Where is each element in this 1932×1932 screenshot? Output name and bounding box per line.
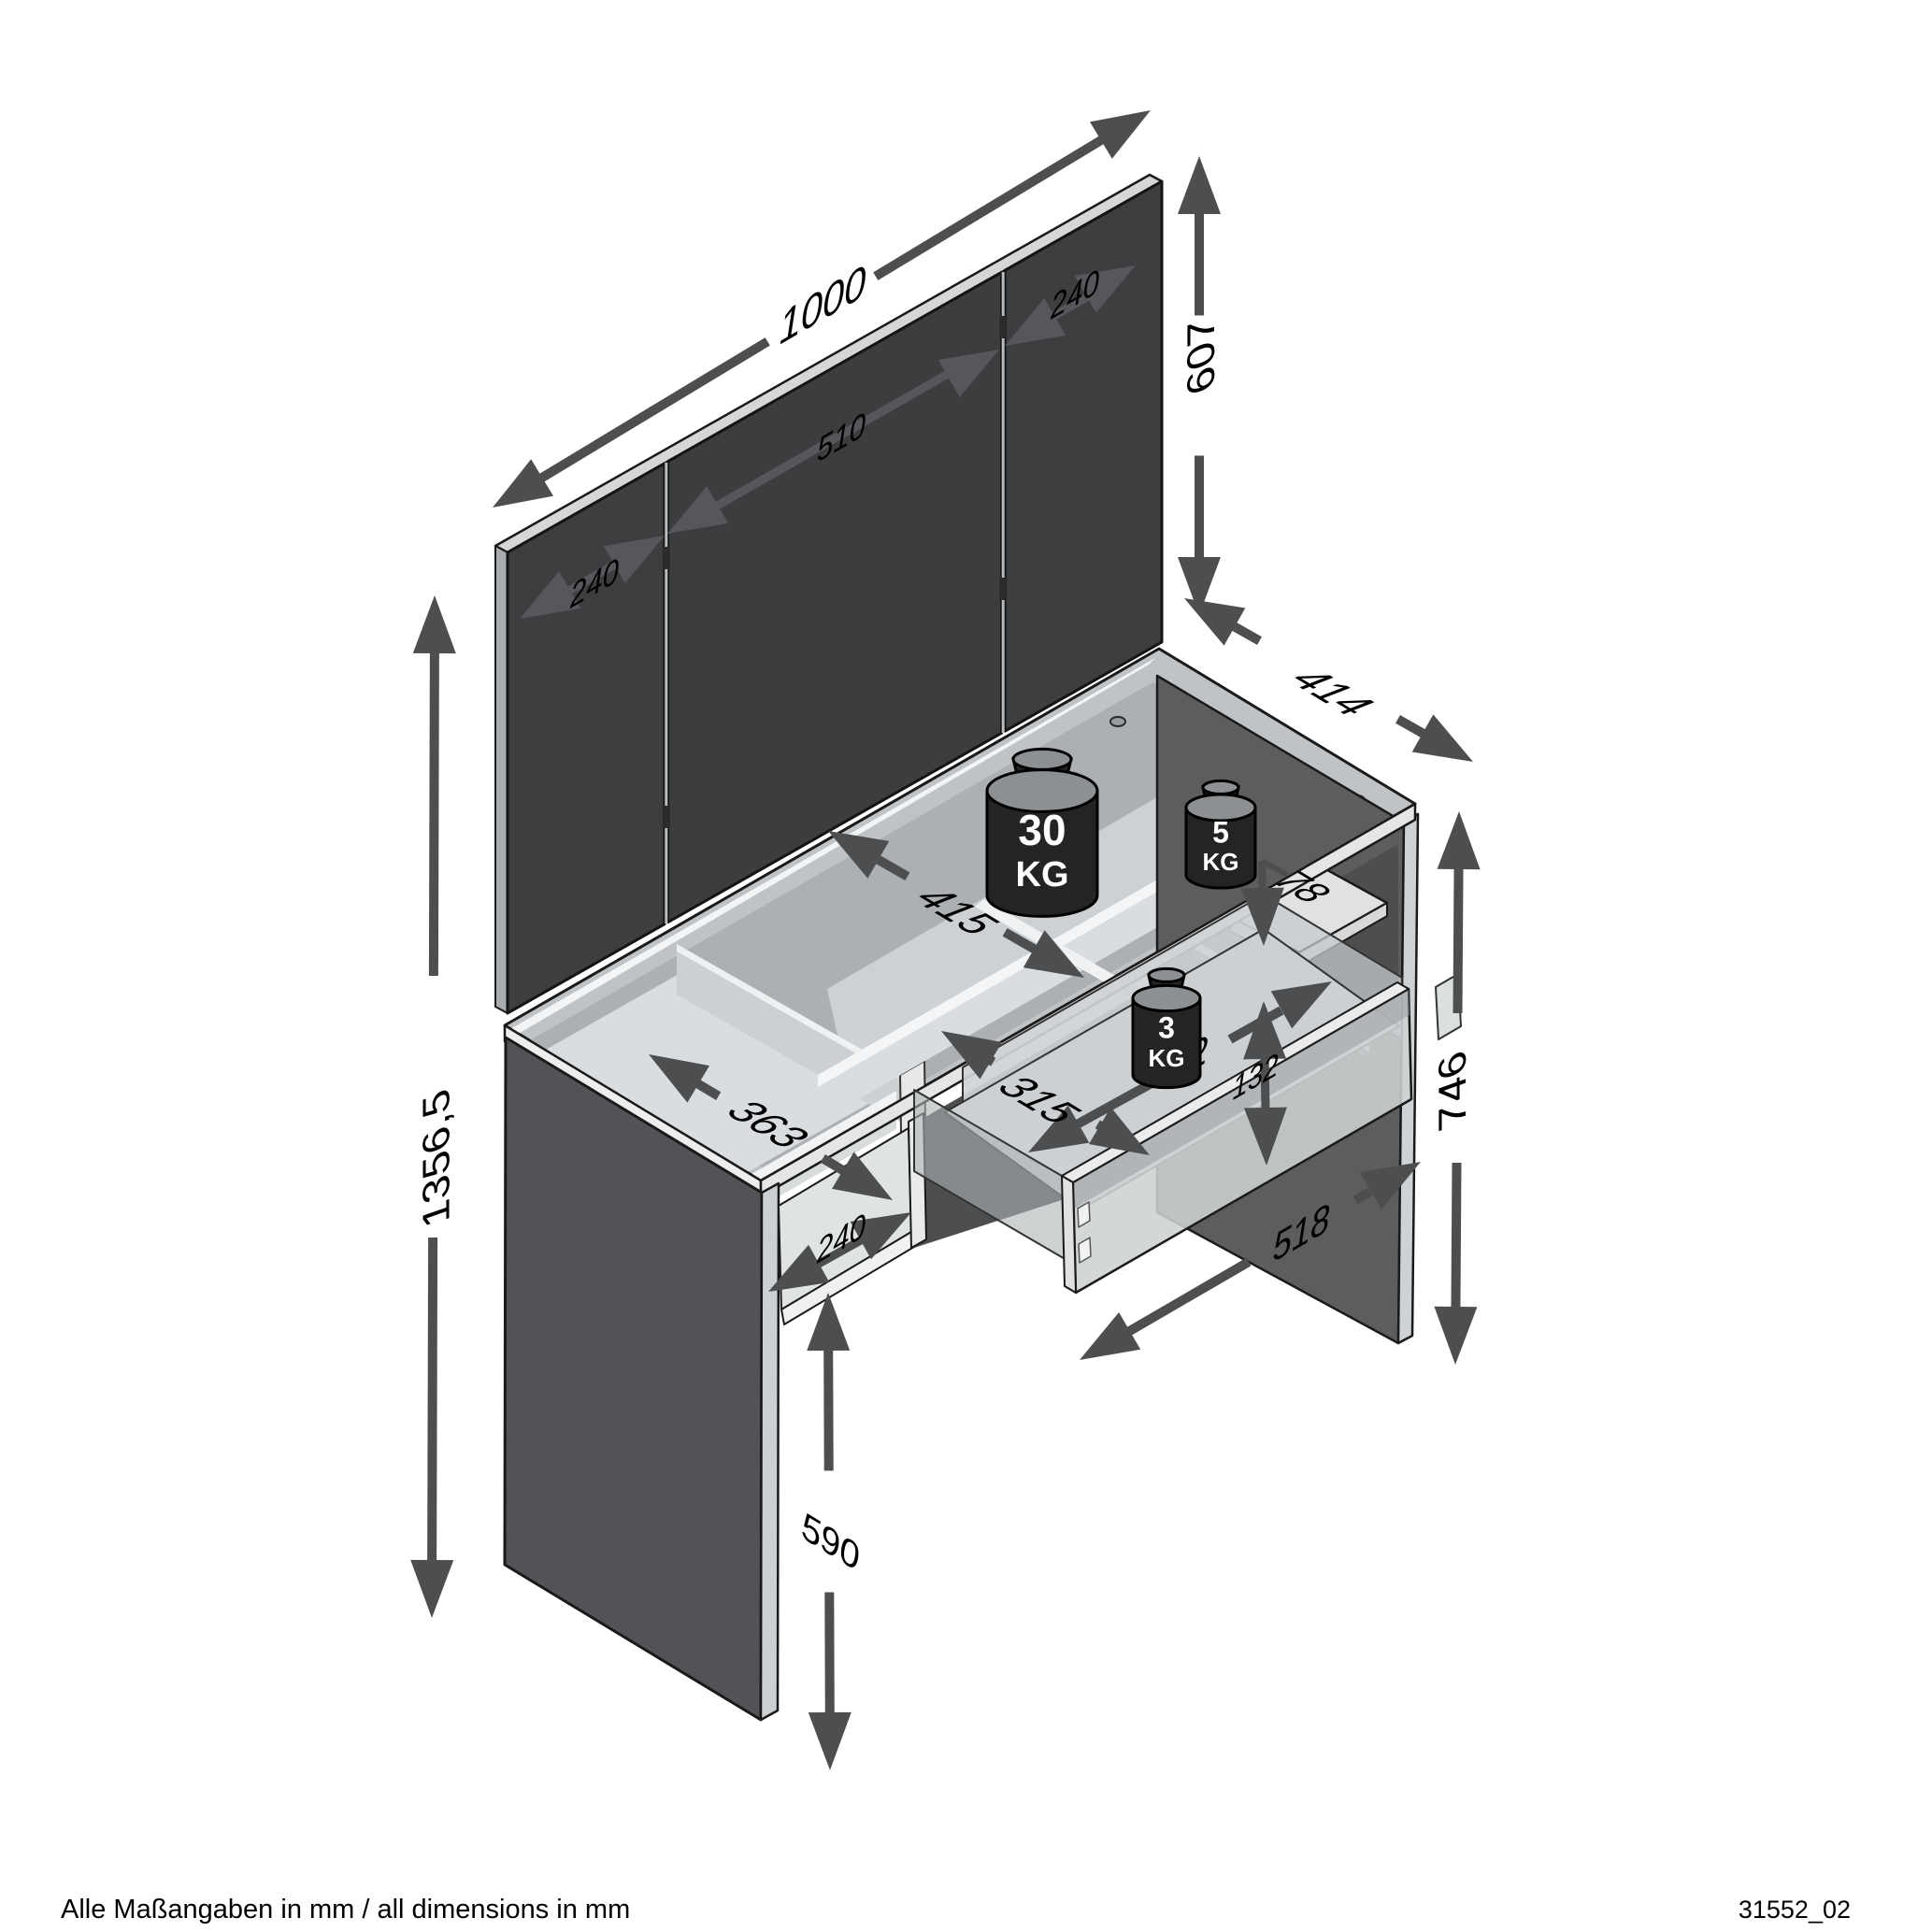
svg-text:30: 30 xyxy=(1018,806,1066,854)
svg-text:5: 5 xyxy=(1212,815,1229,849)
svg-text:3: 3 xyxy=(1158,1011,1175,1045)
svg-text:KG: KG xyxy=(1149,1044,1185,1072)
svg-text:Alle Maßangaben in mm / all di: Alle Maßangaben in mm / all dimensions i… xyxy=(61,1895,630,1925)
svg-text:31552_02: 31552_02 xyxy=(1739,1896,1851,1924)
svg-text:1356,5: 1356,5 xyxy=(414,1080,457,1239)
svg-text:KG: KG xyxy=(1203,848,1239,876)
svg-text:KG: KG xyxy=(1016,855,1069,894)
